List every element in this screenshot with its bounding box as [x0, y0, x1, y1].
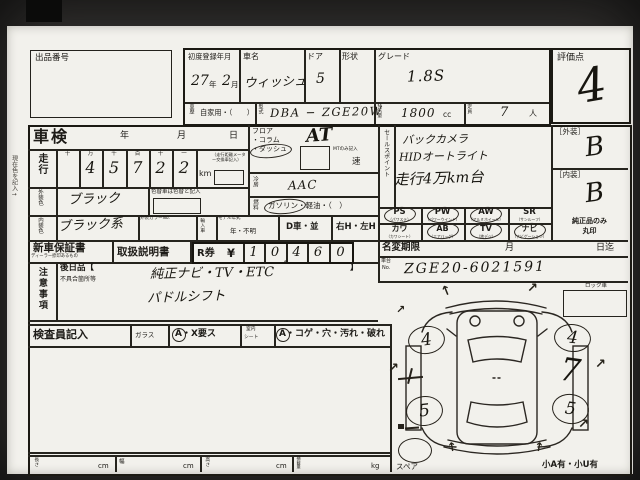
interior-grade-value: B	[583, 179, 606, 207]
name-change-label: 名変期限	[382, 243, 420, 253]
exterior-grade-value: B	[583, 133, 606, 161]
ticket-digit: 1	[243, 246, 264, 259]
equipment-cell: PS （パワステ）	[378, 207, 421, 223]
spare-label: スペア	[396, 463, 418, 471]
equipment-cell: AW （アルミホイール）	[464, 207, 508, 223]
first-reg-month-unit: 月	[231, 81, 239, 89]
exterior-color-value: ブラック	[68, 192, 120, 207]
color-change-box	[153, 198, 201, 214]
displacement-unit: cc	[443, 111, 451, 119]
interior-grade-label: ［内装］	[555, 171, 585, 179]
model-code-value: DBA − ZGE20W	[270, 106, 383, 119]
load-label: 積載量	[296, 456, 301, 472]
pen-arrow-icon: ↗	[578, 417, 589, 432]
aircon-label: 冷房	[252, 176, 258, 193]
notes-later-open: 後日品【	[60, 264, 94, 273]
first-reg-label: 初度登録年月	[188, 53, 231, 61]
length-unit: cm	[98, 463, 109, 471]
equipment-cell: PW （パワーウインド）	[421, 207, 464, 223]
shaken-title: 車検	[33, 128, 69, 146]
lock-car-label: ロック車	[585, 283, 607, 289]
car-name-value: ウィッシュ	[244, 75, 307, 90]
model-year-label: モデル年式	[218, 217, 241, 222]
margin-note: 現在色を記入→	[10, 155, 17, 225]
sales-point-line: バックカメラ	[402, 133, 468, 145]
door-label: ドア	[307, 53, 323, 62]
grade-value: 1.8S	[407, 68, 446, 84]
mileage-header-1: 一	[172, 151, 196, 157]
pen-arrow-icon: ↗	[595, 357, 606, 372]
header-table: 初度登録年月 27 年 2 月 車名 ウィッシュ ドア 5 形状 グレード 1.…	[183, 48, 551, 126]
mt-note: MTのみ記入	[333, 148, 373, 153]
meter-change-box	[214, 170, 244, 185]
shaken-year-label: 年	[120, 132, 129, 142]
notes-defect-label: 不具合箇所等	[60, 277, 96, 284]
height-label: 高さ	[204, 457, 209, 471]
shape-label: 形状	[342, 53, 358, 62]
capacity-label: 定員	[466, 104, 471, 122]
grade-label: グレード	[378, 53, 410, 62]
mt-box	[300, 146, 330, 170]
pen-arrow-icon: ↑	[446, 439, 458, 455]
lot-number-label: 出品番号	[35, 54, 69, 63]
model-year-value: 年・不明	[230, 228, 256, 235]
chassis-label: 車台	[381, 259, 391, 265]
tread-depth-fr: 4	[554, 323, 592, 353]
ticket-currency: ¥	[227, 247, 235, 260]
interior-color-value: ブラック系	[58, 217, 124, 233]
mileage-header-10: 十	[149, 151, 172, 157]
capacity-unit: 人	[529, 110, 537, 119]
height-unit: cm	[276, 463, 287, 471]
mileage-digit: 2	[172, 159, 197, 176]
shaken-day-label: 日	[229, 132, 238, 142]
scan-artifact	[26, 0, 62, 22]
mileage-header-100: 百	[126, 151, 149, 157]
equipment-cell: ナビ （ナビゲーション）	[508, 223, 551, 240]
glass-label: ガラス	[135, 332, 154, 339]
first-reg-year-unit: 年	[209, 81, 217, 89]
score-value: 4	[573, 60, 610, 110]
mileage-header-1k: 千	[102, 151, 126, 157]
wheel-mark-rear-left: 5	[405, 394, 445, 428]
name-change-until: 日迄	[596, 244, 614, 254]
ticket-digit: 6	[307, 246, 329, 259]
manual-label: 取扱説明書	[117, 247, 170, 259]
sales-points-label: セールスポイント	[382, 129, 389, 205]
chassis-label2: No.	[382, 266, 390, 272]
displacement-label: 排気量	[376, 103, 381, 123]
handle-position-cell: 右H・左H	[336, 223, 376, 232]
domestic-car-cell: D車・並	[286, 223, 319, 232]
lot-number-box: 出品番号	[30, 50, 172, 118]
notes-line: 純正ナビ・TV・ETC	[150, 266, 274, 281]
transmission-value: AT	[305, 126, 333, 146]
width-unit: cm	[183, 463, 194, 471]
import-car-label: 輸入車	[199, 218, 204, 238]
mileage-digit: 7	[126, 160, 150, 177]
fuel-label: 燃料	[252, 199, 258, 213]
damage-note: 小A有・小U有	[542, 461, 598, 470]
ticket-label: R券	[197, 248, 215, 259]
equipment-cell: TV （地デジ）	[464, 223, 508, 240]
exterior-color-no-label: 外装カラーNo.	[140, 217, 170, 222]
chassis-value: ZGE20-6021591	[404, 260, 546, 276]
notes-label: 注意事項	[36, 267, 46, 317]
interior-color-label: 内装色	[37, 217, 43, 239]
genuine-parts-note: 純正品のみ	[551, 218, 628, 226]
equipment-cell: カワ （カワシート）	[378, 223, 421, 240]
mileage-header-100k: 十	[56, 151, 79, 157]
load-unit: kg	[371, 463, 380, 471]
capacity-value: 7	[500, 106, 508, 119]
seat-label2: シート	[244, 335, 258, 340]
ticket-comma: ,	[283, 252, 287, 264]
equipment-cell: AB （エアバッグ）	[421, 223, 464, 240]
history-value: 自家用・（ ）	[200, 109, 254, 117]
car-name-label: 車名	[243, 53, 259, 62]
ticket-box: R券 ¥ 1 0 4 6 0 ,	[192, 242, 354, 264]
mileage-digit: 4	[79, 159, 103, 176]
exterior-color-label: 外装色	[37, 189, 43, 214]
notes-line: パドルシフト	[147, 290, 226, 306]
wheel-mark-front-right: 4	[553, 322, 593, 354]
spare-tire-mark	[398, 438, 432, 463]
pen-mark	[398, 424, 404, 429]
first-reg-year: 27	[191, 74, 209, 88]
ticket-digit: 0	[329, 246, 352, 259]
warranty-subtitle: ディーラー捺印あるもの	[31, 255, 78, 260]
mileage-label: 走行	[36, 153, 47, 183]
ticket-digit: 4	[286, 246, 307, 259]
auction-sheet-scan: 現在色を記入→ 出品番号 初度登録年月 27 年 2 月 車名 ウィッシュ ドア…	[0, 0, 640, 480]
mt-speed-suffix: 速	[352, 158, 361, 167]
model-code-label: 型式	[257, 104, 263, 122]
inspector-label: 検査員記入	[33, 329, 88, 341]
name-change-month: 月	[505, 244, 514, 254]
first-reg-month: 2	[222, 74, 231, 88]
tread-depth-rl: 5	[406, 395, 444, 427]
mileage-unit: km	[199, 170, 211, 179]
shift-position-line: フロア	[252, 128, 273, 136]
displacement-value: 1800	[401, 107, 436, 119]
pen-arrow-icon: ↗	[527, 281, 538, 296]
notes-later-close: 】	[350, 264, 359, 273]
score-box: 評価点 4	[551, 48, 631, 124]
door-value: 5	[316, 72, 325, 86]
mileage-digit: 2	[149, 160, 172, 176]
pen-arrow-icon: ↗	[396, 303, 405, 316]
seat-label: 室内	[246, 327, 256, 332]
equipment-cell: SR （サンルーフ）	[508, 207, 551, 223]
length-label: 長さ	[33, 457, 38, 471]
mileage-digit: 5	[102, 160, 127, 177]
seat-value: A・コゲ・穴・汚れ・破れ	[279, 330, 385, 340]
shaken-month-label: 月	[177, 132, 186, 142]
sales-point-line: 走行4万km台	[394, 170, 484, 188]
aircon-value: AAC	[288, 178, 318, 191]
mileage-unit-note: （走行距離メーター交換車記入）	[212, 152, 246, 162]
history-label: 車歴	[188, 104, 194, 122]
warranty-title: 新車保証書	[33, 243, 86, 255]
tread-depth-fl: 4	[407, 325, 445, 356]
mileage-header-10k: 万	[79, 151, 102, 157]
color-change-note: 色替車は色替と記入	[151, 189, 201, 195]
sales-point-line: HIDオートライト	[399, 150, 488, 163]
pen-arrow-icon: ↗	[388, 361, 399, 376]
exterior-grade-label: ［外装］	[555, 128, 585, 136]
genuine-parts-note2: 丸印	[551, 228, 628, 236]
width-label: 幅	[119, 459, 125, 465]
